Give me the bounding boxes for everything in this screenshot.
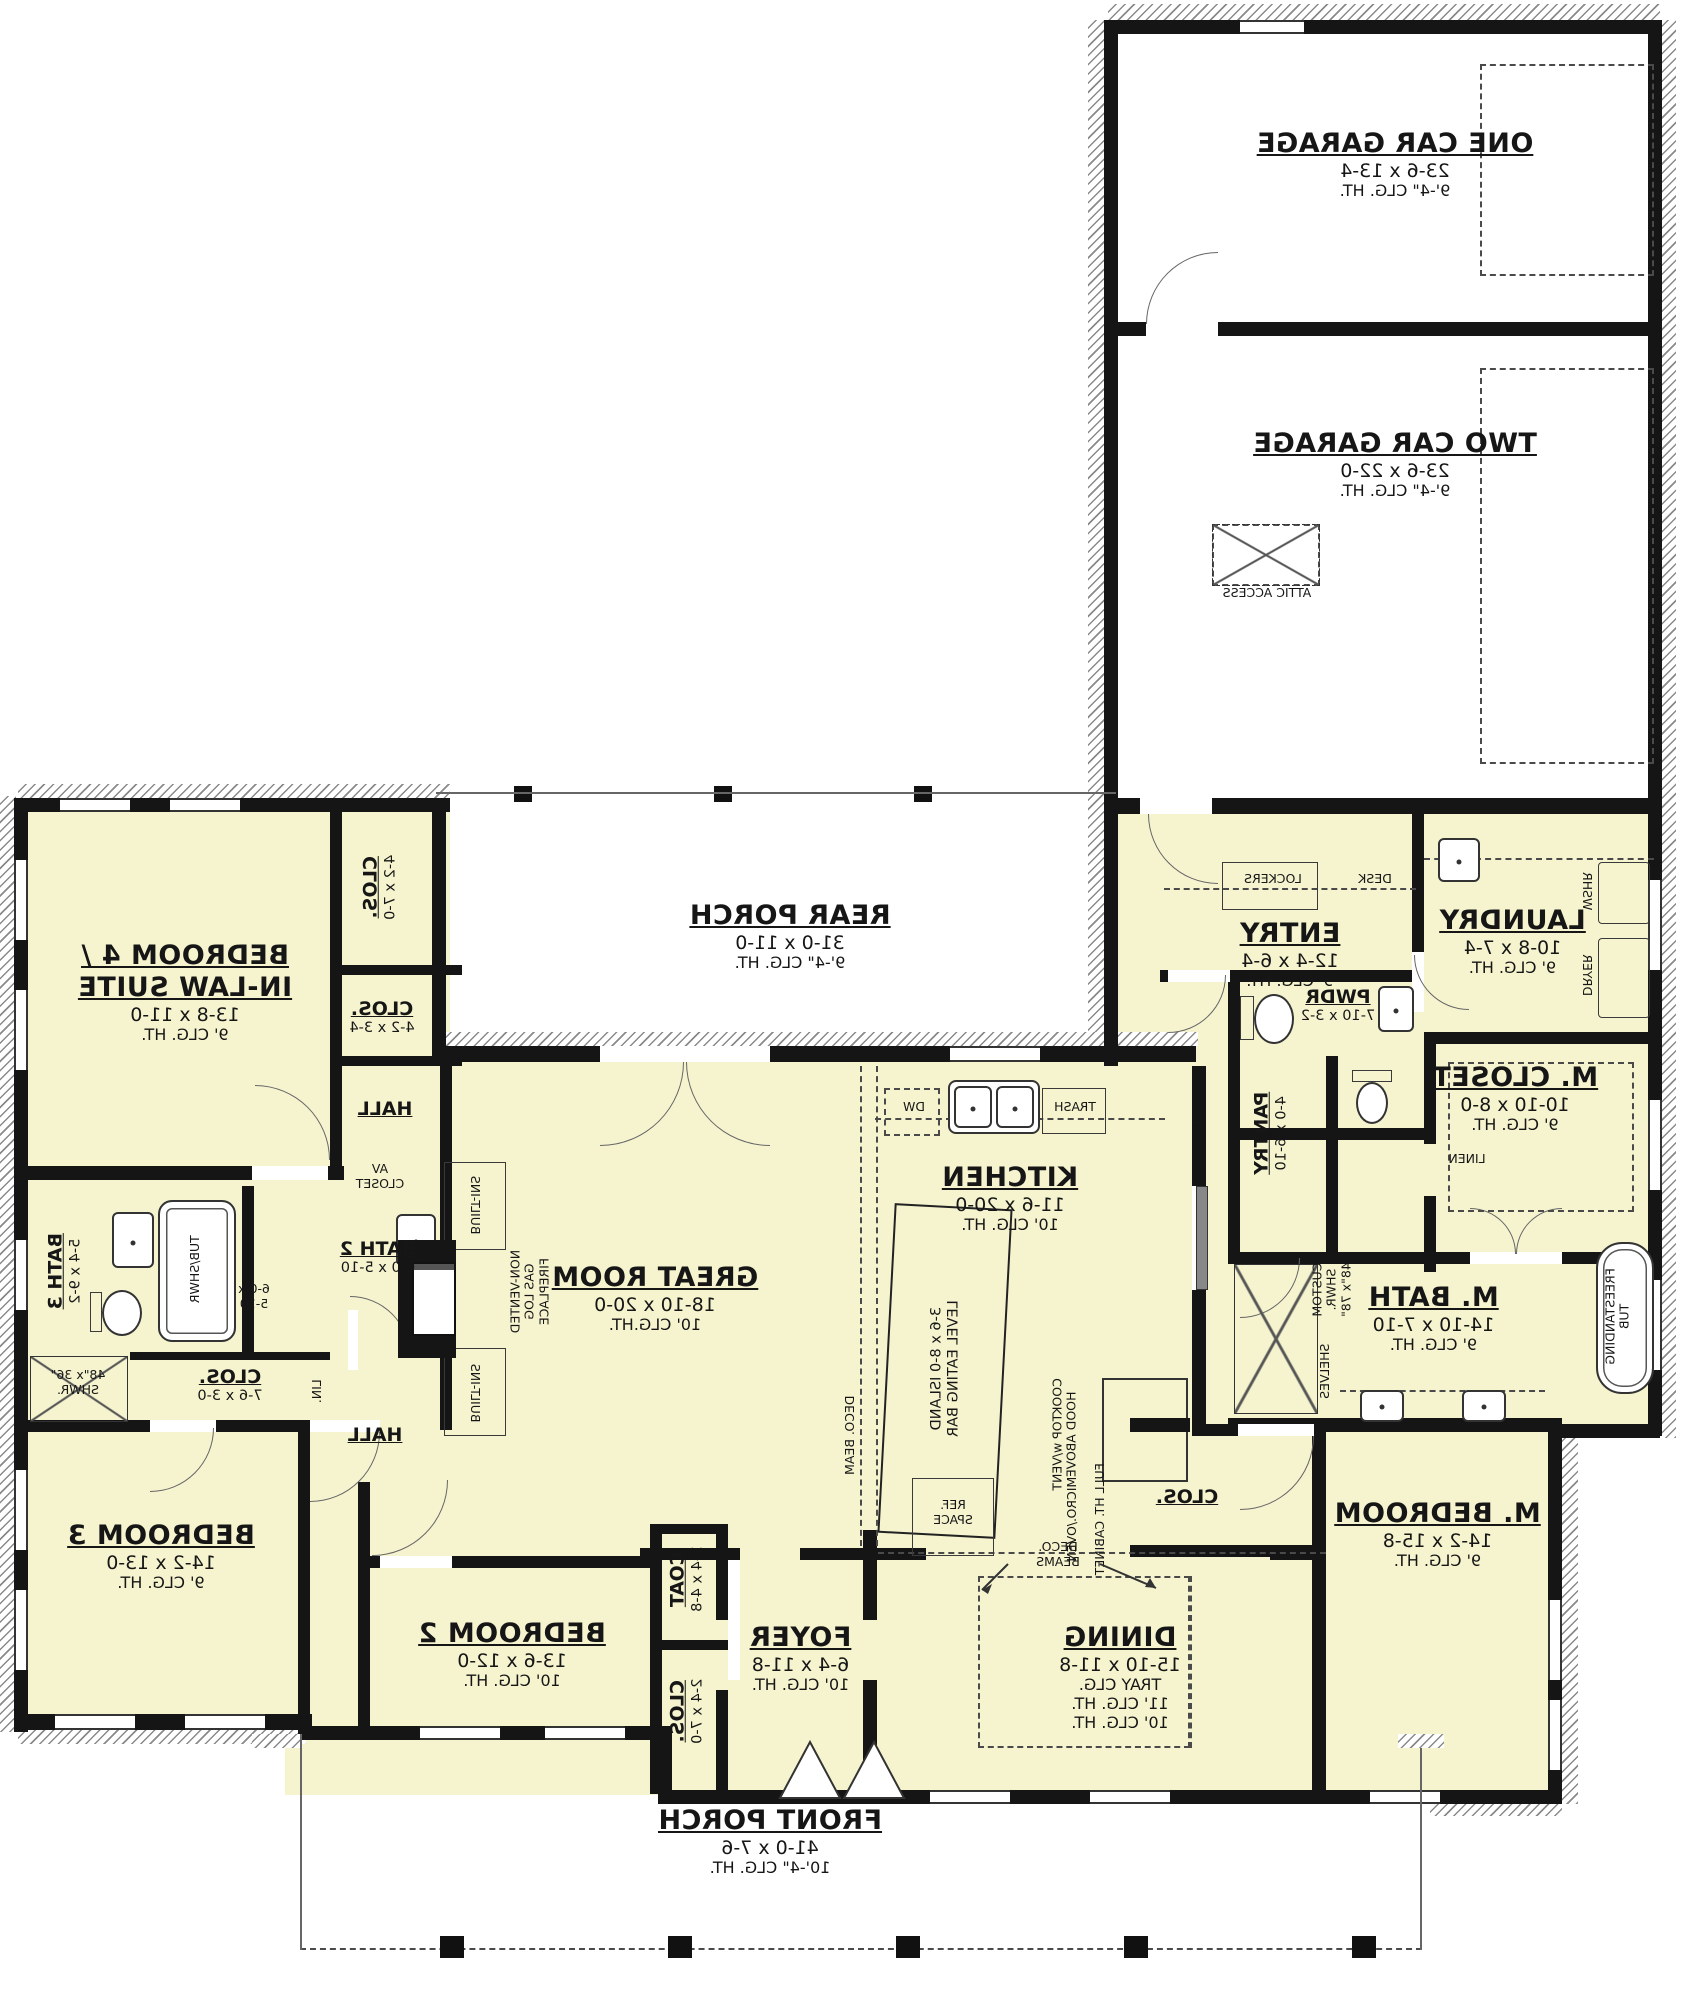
pwdr-toilet-tank: [1240, 996, 1254, 1040]
window: [170, 798, 240, 812]
wall-segment: [1110, 20, 1660, 34]
room-label-kitchen: KITCHEN 11-6 x 20-0 10' CLG. HT.: [880, 1162, 1140, 1235]
window: [930, 1790, 1010, 1804]
room-label-entry: ENTRY 12-4 x 6-4 9' CLG. HT.: [1165, 918, 1415, 991]
wall-segment: [1228, 1056, 1240, 1256]
hatch-strip: [1430, 1804, 1562, 1816]
wall-segment: [1326, 1056, 1338, 1256]
window: [14, 1470, 28, 1550]
bath3-toilet-tank: [90, 1292, 102, 1332]
annotation-linen: LINEN: [1424, 1152, 1510, 1167]
room-label-hall-main: HALL: [332, 1424, 418, 1446]
porch-edge: [1420, 1734, 1422, 1950]
floor-plan: ONE CAR GARAGE 23-6 x 13-4 9'-4" CLG. HT…: [0, 0, 1688, 2000]
window: [1648, 1100, 1662, 1190]
annotation-shelves: SHELVES: [1318, 1316, 1332, 1426]
annotation-shwr-48x36: 48"x 36" SHWR.: [30, 1368, 126, 1398]
laundry-sink-icon: [1438, 838, 1480, 882]
annotation-av-closet: AV CLOSET: [330, 1162, 430, 1192]
wall-segment: [330, 812, 342, 1178]
porch-post: [1124, 1936, 1148, 1958]
room-label-rear-porch: REAR PORCH 31-0 x 11-0 9'-4" CLG. HT.: [580, 900, 1000, 973]
annotation-dw: DW: [892, 1100, 936, 1115]
room-label-bath2: BATH 2 6-0 x 5-10: [308, 1238, 448, 1278]
window: [1240, 20, 1304, 34]
deco-beam-line: [876, 1066, 878, 1546]
room-label-clos-mbed: CLOS.: [1142, 1486, 1232, 1508]
wall-segment: [436, 1046, 616, 1062]
wall-segment: [432, 798, 446, 1060]
porch-hatch: [252, 1734, 300, 1748]
annotation-barn-door: BARN DOOR: [1191, 1077, 1205, 1217]
room-label-laundry: LAUNDRY 10-8 x 7-4 9' CLG. HT.: [1420, 905, 1605, 978]
annotation-lockers: LOCKERS: [1228, 872, 1318, 887]
hatch-strip: [1108, 4, 1660, 20]
room-label-two-car-garage: TWO CAR GARAGE 23-6 x 22-0 9'-4" CLG. HT…: [1160, 428, 1630, 501]
porch-hatch: [1398, 1734, 1444, 1748]
washer-icon: [1598, 862, 1650, 924]
annotation-dryer: DRYER: [1580, 920, 1594, 1030]
window: [14, 860, 28, 940]
porch-post: [1352, 1936, 1376, 1958]
porch-post: [514, 786, 532, 802]
wall-segment: [863, 1530, 877, 1620]
mbath-sink-right-icon: [1462, 1390, 1506, 1422]
room-label-bedroom3: BEDROOM 3 14-2 x 13-0 9' CLG. HT.: [30, 1520, 292, 1593]
door-opening: [252, 1166, 328, 1180]
room-label-m-bedroom: M. BEDROOM 14-2 x 15-8 9' CLG. HT.: [1325, 1498, 1550, 1571]
front-door-icon: [778, 1738, 908, 1800]
annotation-builtins-top: BUILT-INS: [468, 1150, 482, 1260]
annotation-island: 3-6 x 8-0 ISLAND LEVEL EATING BAR: [928, 1269, 961, 1469]
window: [1548, 1600, 1562, 1680]
wall-segment: [1104, 20, 1118, 1066]
porch-post: [896, 1936, 920, 1958]
deco-beams-arrows: [960, 1552, 1180, 1612]
window: [14, 1590, 28, 1670]
attic-access-box: [1212, 524, 1320, 586]
bath3-toilet-bowl: [102, 1290, 142, 1336]
room-label-bedroom4: BEDROOM 4 / IN-LAW SUITE 13-8 x 11-0 9' …: [45, 940, 325, 1045]
door-opening: [1146, 322, 1218, 336]
hatch-strip: [1562, 1424, 1578, 1804]
dryer-icon: [1598, 938, 1650, 1018]
wall-segment: [298, 1420, 310, 1726]
room-label-pwdr: PWDR 7-10 x 3-2: [1258, 986, 1418, 1026]
wall-segment: [1548, 1424, 1660, 1438]
dashed-line: [300, 1948, 1422, 1950]
porch-post: [914, 786, 932, 802]
window: [14, 1240, 28, 1310]
wall-segment: [1424, 1032, 1660, 1044]
porch-post: [668, 1936, 692, 1958]
bath3-sink-icon: [112, 1212, 154, 1268]
cooktop-wall: [1130, 1418, 1190, 1432]
door-opening: [600, 1046, 770, 1062]
kitchen-sink-basin-l: [954, 1086, 992, 1128]
wall-segment: [716, 1690, 728, 1794]
room-label-coat: COAT 2-4 x 4-8: [668, 1504, 707, 1654]
window: [950, 1046, 1040, 1062]
window: [60, 798, 130, 812]
room-label-clos-b4-top: CLOS. 4-2 x 7-0: [361, 822, 400, 952]
porch-edge: [300, 1734, 302, 1950]
room-label-one-car-garage: ONE CAR GARAGE 23-6 x 13-4 9'-4" CLG. HT…: [1160, 128, 1630, 201]
window: [420, 1726, 500, 1740]
porch-post: [440, 1936, 464, 1958]
room-label-foyer: FOYER 6-4 x 11-8 10' CLG. HT.: [718, 1622, 883, 1695]
window: [1090, 1790, 1170, 1804]
wall-segment: [130, 1352, 330, 1360]
wall-segment: [330, 965, 462, 975]
room-label-bedroom2: BEDROOM 2 13-6 x 12-0 10' CLG. HT.: [372, 1618, 652, 1691]
wall-segment: [1192, 1290, 1206, 1430]
room-label-front-porch: FRONT PORCH 41-0 x 7-6 10'-4" CLG. HT.: [560, 1805, 980, 1878]
room-label-hall-b4: HALL: [340, 1098, 430, 1120]
annotation-trash: TRASH: [1044, 1100, 1106, 1115]
wall-segment: [358, 1482, 370, 1732]
hatch-strip: [1660, 20, 1676, 1438]
hatch-strip: [18, 784, 450, 798]
wall-segment: [242, 1186, 254, 1356]
window: [185, 1714, 265, 1730]
mbath-sink-left-icon: [1360, 1390, 1404, 1422]
window: [55, 1714, 135, 1730]
annotation-builtins-bottom: BUILT-INS: [468, 1338, 482, 1448]
room-label-dining: DINING 15-10 x 11-8 TRAY CLG. 11' CLG. H…: [985, 1622, 1255, 1733]
door-opening: [1140, 798, 1212, 814]
hatch-strip: [434, 1032, 1198, 1046]
annotation-freestanding-tub: FREESTANDING TUB: [1604, 1256, 1633, 1376]
door-opening: [1238, 1424, 1314, 1436]
annotation-bath2-size: 6-0 x 5-10: [224, 1282, 284, 1312]
annotation-attic-access: ATTIC ACCESS: [1192, 586, 1342, 601]
wall-segment: [716, 1530, 728, 1620]
room-label-clos-foyer: CLOS. 2-4 x 7-0: [668, 1636, 707, 1786]
wall-segment: [1312, 1424, 1326, 1804]
annotation-lin: LIN.: [310, 1336, 324, 1446]
annotation-fireplace: NON-VENTED GAS LOG FIREPLACE: [508, 1232, 551, 1352]
room-label-m-closet: M. CLOSET 10-10 x 8-0 9' CLG. HT.: [1395, 1062, 1635, 1135]
room-label-bath3: BATH 3 5-4 x 9-2: [46, 1206, 85, 1336]
kitchen-sink-basin-r: [996, 1086, 1034, 1128]
porch-post: [714, 786, 732, 802]
wc-toilet-tank: [1352, 1070, 1392, 1082]
window: [545, 1726, 625, 1740]
porch-edge: [436, 792, 1116, 794]
annotation-ref-space: REF. SPACE: [914, 1498, 992, 1528]
door-opening: [380, 1556, 452, 1568]
master-shower-icon: [1234, 1264, 1318, 1414]
wc-toilet-bowl: [1356, 1082, 1388, 1124]
hatch-strip: [1088, 20, 1104, 1052]
annotation-deco-beam: DECO. BEAM: [843, 1375, 857, 1495]
annotation-desk: DESK: [1330, 872, 1420, 887]
room-label-clos-hall: CLOS. 7-6 x 3-0: [150, 1366, 310, 1406]
window: [14, 990, 28, 1070]
annotation-tub-shwr: TUB/SHWR: [188, 1214, 202, 1324]
room-label-pantry: PANTRY 4-0 x 6-10: [1252, 1058, 1291, 1208]
room-label-clos-b4: CLOS. 4-2 x 3-4: [334, 998, 430, 1038]
window: [1648, 880, 1662, 970]
door-arc: [1146, 252, 1218, 324]
window: [1370, 1790, 1440, 1804]
window: [1548, 1700, 1562, 1770]
